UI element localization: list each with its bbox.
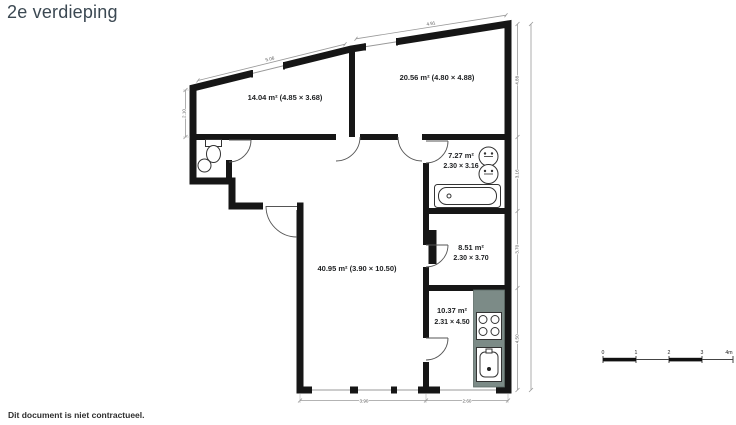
dim-bottom-left: 3.90 [360, 399, 369, 404]
room-label-storage: 8.51 m² [458, 243, 484, 252]
floor-plan: 14.04 m² (4.85 × 3.68) 20.56 m² (4.80 × … [0, 0, 736, 425]
room-label-bedroom-left: 14.04 m² (4.85 × 3.68) [248, 93, 323, 102]
disclaimer-text: Dit document is niet contractueel. [8, 410, 145, 420]
dim-bottom-right: 2.60 [463, 399, 472, 404]
bathtub-icon [435, 185, 501, 208]
dim-top-right-roof: 4.91 [426, 20, 436, 26]
door-arc-bedroom-right [398, 137, 422, 161]
toilet-icon [206, 140, 222, 163]
dim-right-1: 4.88 [514, 75, 519, 84]
room-label-bedroom-right: 20.56 m² (4.80 × 4.88) [400, 73, 475, 82]
window-pier [350, 387, 358, 394]
room-label-kitchen: 10.37 m² [437, 306, 468, 315]
dim-left-height: 2.10 [182, 109, 187, 118]
dim-right-2: 3.16 [514, 169, 519, 178]
interior-walls [193, 47, 508, 390]
door-arc-bathroom [426, 141, 448, 163]
scale-bar-segment [603, 358, 636, 362]
room-dims-bathroom: 2.30 × 3.16 [443, 163, 478, 170]
room-label-living: 40.95 m² (3.90 × 10.50) [317, 264, 397, 273]
room-dims-kitchen: 2.31 × 4.50 [434, 319, 469, 326]
dim-right-4: 4.50 [514, 334, 519, 343]
door-arc-wc [229, 140, 251, 162]
scale-bar: 0 1 2 3 4m [602, 350, 733, 363]
window-pier [391, 387, 397, 394]
dim-right-3: 3.70 [514, 244, 519, 253]
scale-tick-0: 0 [602, 350, 605, 356]
room-dims-storage: 2.30 × 3.70 [453, 255, 488, 262]
door-arc-kitchen [426, 338, 448, 360]
door-arc-bedroom-left [336, 137, 360, 161]
kitchen-sink-icon [477, 348, 502, 382]
hand-basin-icon [198, 159, 211, 172]
scale-tick-2: 2 [668, 350, 671, 356]
scale-bar-segment [669, 358, 702, 362]
stove-icon [477, 313, 502, 340]
double-washbasin-icon [479, 147, 498, 184]
room-label-bathroom: 7.27 m² [448, 151, 474, 160]
scale-tick-3: 3 [701, 350, 704, 356]
duct [429, 230, 437, 264]
windows [252, 38, 496, 394]
door-arc-hall [266, 206, 297, 237]
scale-tick-4: 4m [725, 350, 732, 356]
scale-tick-1: 1 [635, 350, 638, 356]
doors [229, 137, 448, 360]
